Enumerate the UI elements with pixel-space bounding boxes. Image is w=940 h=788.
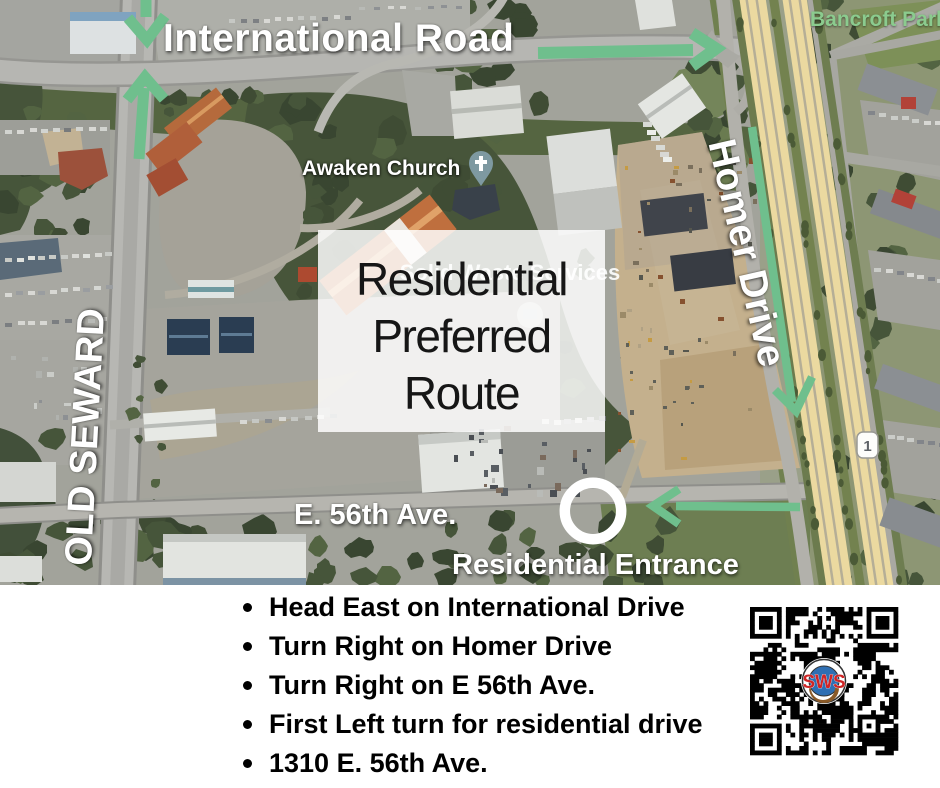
svg-text:SWS: SWS [802,672,845,693]
